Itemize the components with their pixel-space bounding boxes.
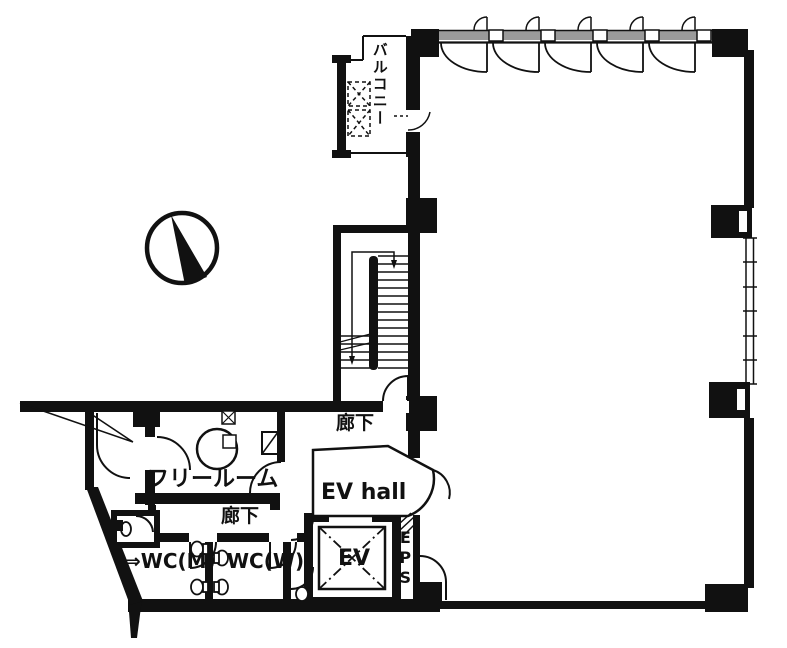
ev-hall-label: EV hall <box>321 481 406 504</box>
floor-plan-drawing <box>0 0 787 648</box>
compass-icon <box>147 213 217 285</box>
corridor-lower-label: 廊下 <box>221 507 259 527</box>
free-room-fixtures <box>197 411 278 469</box>
top-window-casements <box>439 17 712 72</box>
wc-men-text: WC(M) <box>141 549 216 573</box>
balcony-label: バルコニー <box>371 42 387 158</box>
wc-men-label: ⇒WC(M) <box>124 551 216 572</box>
wc-women-label: WC(W) <box>227 551 304 572</box>
free-room-label: フリールーム <box>147 468 278 491</box>
elevator-label: EV <box>338 547 370 570</box>
corridor-upper-label: 廊下 <box>336 414 374 434</box>
right-window-band <box>743 238 757 384</box>
floor-plan: バルコニー 廊下 フリールーム 廊下 EV hall EV EPS ⇒WC(M)… <box>0 0 787 648</box>
balcony-hatch <box>348 82 370 136</box>
wc-men-arrow-icon: ⇒ <box>124 549 141 573</box>
staircase <box>340 252 408 370</box>
eps-label: EPS <box>396 528 413 602</box>
